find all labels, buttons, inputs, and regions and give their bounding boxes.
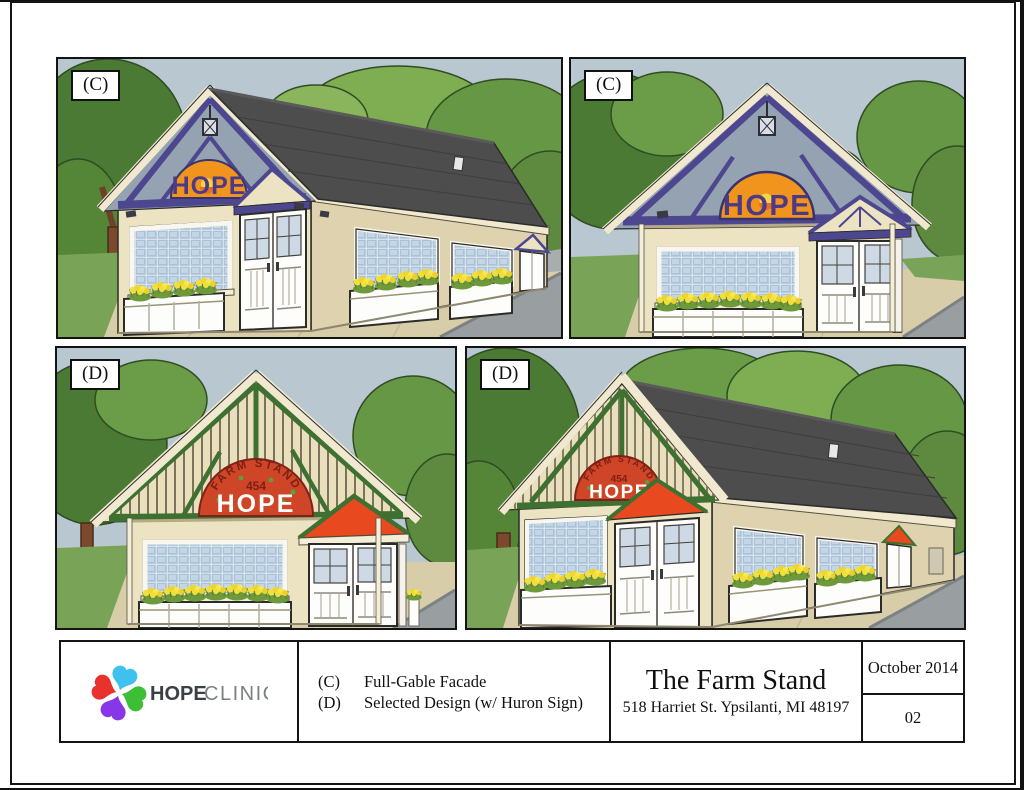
project-title: The Farm Stand [646, 666, 826, 696]
logo-word-clinic: CLINIC [204, 683, 268, 705]
rendering-d-perspective: FARM STAND 454 HOPE [467, 348, 964, 628]
legend-row-c: (C) Full-Gable Facade [318, 671, 609, 692]
front-doors [615, 518, 699, 628]
panel-c-front: HOPE [569, 57, 966, 339]
front-doors [240, 209, 306, 330]
roof-vent [453, 157, 464, 171]
utility-meter [929, 548, 943, 574]
downspout [895, 239, 902, 332]
logo-cell: HOPE CLINIC [61, 642, 297, 741]
front-doors [817, 241, 901, 332]
sheet-date: October 2014 [863, 642, 963, 695]
rendering-d-front: FARM STAND 454 HOPE [57, 348, 455, 628]
panel-label: (C) [71, 70, 120, 101]
logo-hearts-icon [90, 663, 153, 721]
legend-row-d: (D) Selected Design (w/ Huron Sign) [318, 692, 609, 713]
front-doors [309, 544, 397, 626]
project-title-cell: The Farm Stand 518 Harriet St. Ypsilanti… [609, 642, 861, 741]
panel-d-front: FARM STAND 454 HOPE [55, 346, 457, 630]
hope-clinic-logo: HOPE CLINIC [90, 663, 268, 721]
flower-pedestal [406, 589, 421, 626]
front-planter [521, 569, 611, 628]
panel-label: (D) [480, 359, 530, 390]
sheet-number: 02 [863, 695, 963, 741]
legend-key: (C) [318, 671, 364, 692]
front-planter [124, 278, 224, 335]
scan-edge-right [1020, 0, 1024, 790]
roof-vent [828, 444, 838, 459]
legend-cell: (C) Full-Gable Facade (D) Selected Desig… [297, 642, 609, 741]
legend-key: (D) [318, 692, 364, 713]
meta-cell: October 2014 02 [861, 642, 963, 741]
legend-desc: Full-Gable Facade [364, 671, 609, 692]
rendering-c-perspective: HOPE [58, 59, 561, 337]
project-address: 518 Harriet St. Ypsilanti, MI 48197 [623, 699, 850, 717]
panel-c-perspective: HOPE [56, 57, 563, 339]
legend-desc: Selected Design (w/ Huron Sign) [364, 692, 609, 713]
title-block: HOPE CLINIC (C) Full-Gable Facade (D) Se… [59, 640, 965, 743]
panel-d-perspective: FARM STAND 454 HOPE [465, 346, 966, 630]
hope-sign-text: HOPE [723, 190, 811, 222]
logo-word-hope: HOPE [150, 683, 207, 705]
sign-hope-text: HOPE [217, 490, 296, 518]
drawing-sheet: HOPE [0, 0, 1024, 790]
downspout [399, 544, 406, 626]
panel-label: (C) [584, 70, 633, 101]
hope-sign-text: HOPE [172, 172, 247, 200]
panel-label: (D) [70, 359, 120, 390]
